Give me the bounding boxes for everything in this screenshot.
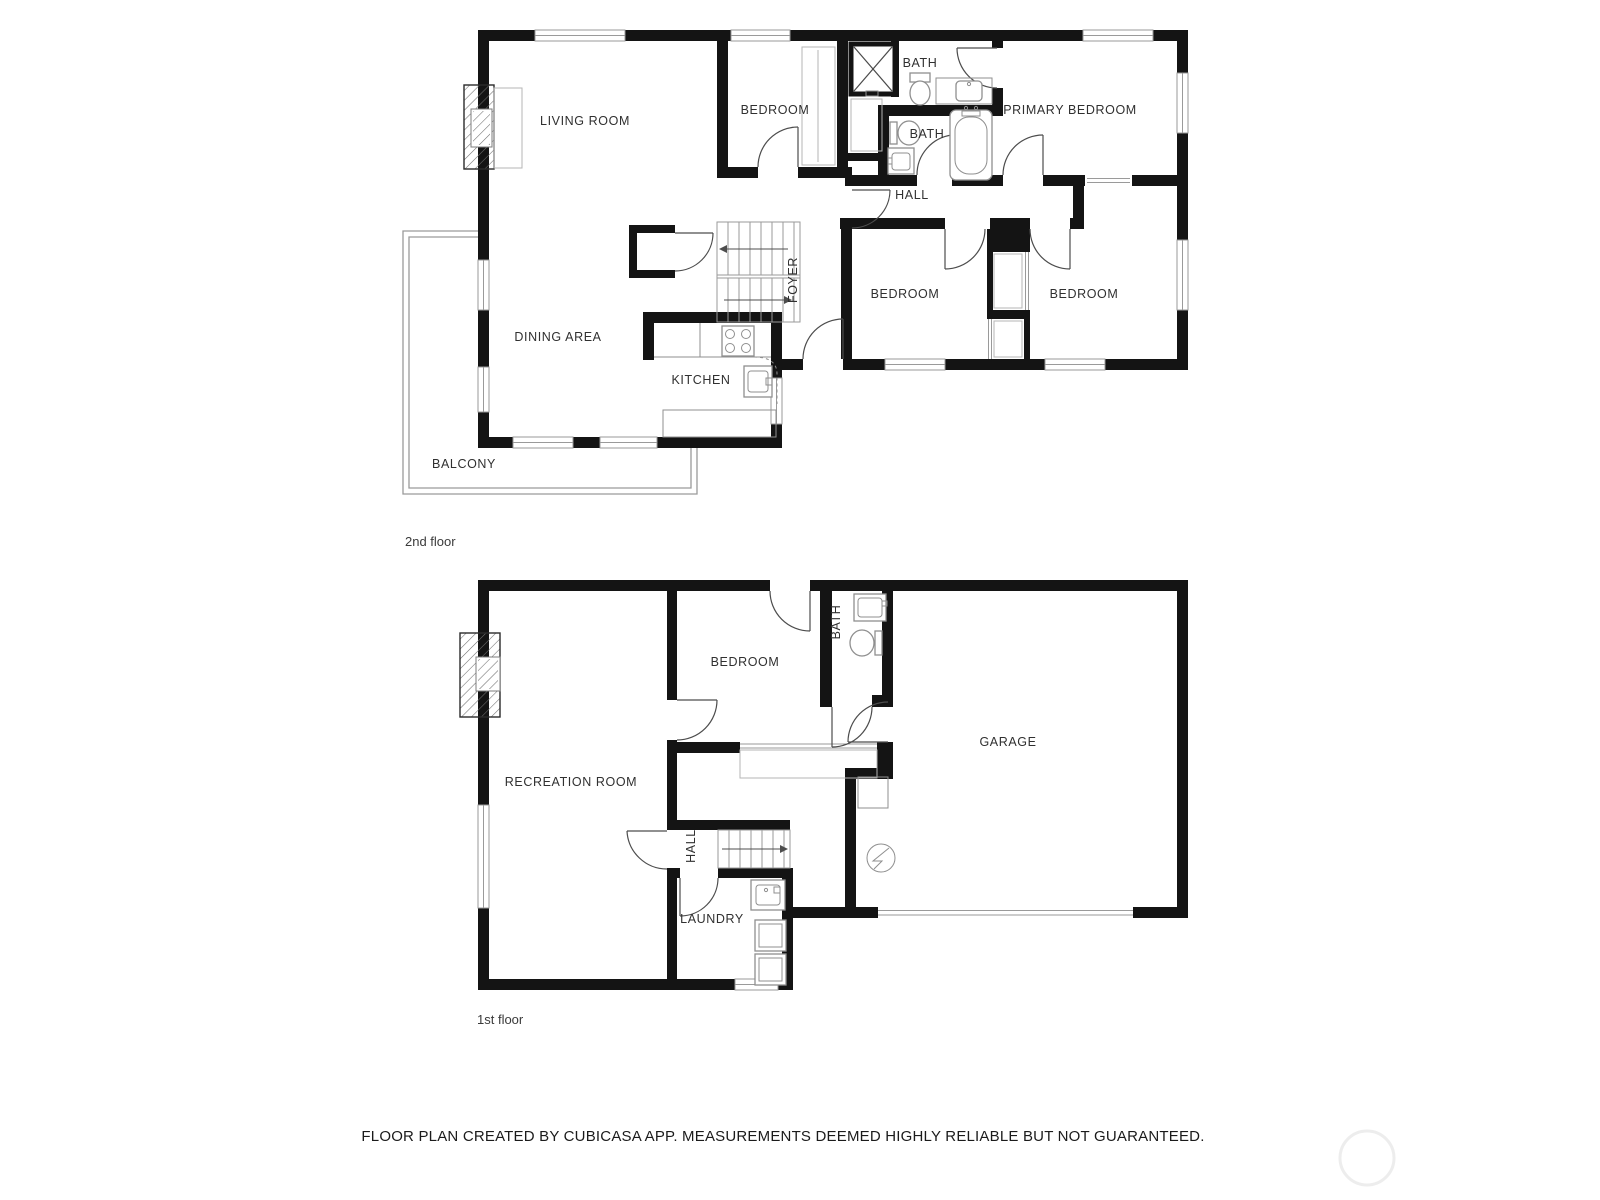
walls-second-floor xyxy=(478,30,1188,448)
disclaimer-footer: FLOOR PLAN CREATED BY CUBICASA APP. MEAS… xyxy=(361,1128,1204,1145)
closet-linen xyxy=(851,99,882,151)
room-label-balcony: BALCONY xyxy=(432,457,496,471)
room-label-bedroom-right: BEDROOM xyxy=(1050,287,1119,301)
room-label-bedroom-1f: BEDROOM xyxy=(711,655,780,669)
cubicasa-watermark-circle xyxy=(1340,1131,1394,1185)
room-label-garage: GARAGE xyxy=(979,735,1036,749)
fireplace-first-floor xyxy=(460,633,500,717)
room-label-dining-area: DINING AREA xyxy=(514,330,601,344)
bathtub-icon xyxy=(950,106,992,180)
floor-plan-page: LIVING ROOM BEDROOM BATH PRIMARY BEDROOM… xyxy=(0,0,1600,1200)
stairs-first-floor xyxy=(718,830,790,868)
washer-icon xyxy=(755,920,786,951)
sink-icon-bath-upper xyxy=(936,78,992,104)
sliding-door-bedroom-closets xyxy=(987,252,1030,359)
laundry-sink-icon xyxy=(751,880,785,910)
sink-icon-bath-lower xyxy=(888,148,914,174)
windows-second-floor xyxy=(478,30,1188,448)
caption-second-floor: 2nd floor xyxy=(405,534,456,549)
shower-icon xyxy=(851,44,895,96)
fireplace-second-floor xyxy=(464,85,522,169)
room-label-bath-1f: BATH xyxy=(829,605,843,640)
room-label-bedroom-top: BEDROOM xyxy=(741,103,810,117)
room-label-bath-lower: BATH xyxy=(910,127,945,141)
room-label-bath-upper: BATH xyxy=(903,56,938,70)
sink-icon-bath-first xyxy=(854,594,887,621)
room-labels: LIVING ROOM BEDROOM BATH PRIMARY BEDROOM… xyxy=(432,56,1137,926)
electrical-panel-icon xyxy=(867,844,895,872)
room-label-foyer: FOYER xyxy=(786,257,800,303)
windows-first-floor xyxy=(478,805,778,990)
toilet-icon-bath-upper xyxy=(910,73,930,105)
room-label-hall-2f: HALL xyxy=(895,188,929,202)
room-label-hall-1f: HALL xyxy=(684,829,698,863)
garage-door xyxy=(878,907,1133,918)
room-label-living-room: LIVING ROOM xyxy=(540,114,630,128)
room-label-bedroom-mid: BEDROOM xyxy=(871,287,940,301)
toilet-icon-bath-first xyxy=(850,630,882,656)
dryer-icon xyxy=(755,954,786,985)
room-label-recreation-room: RECREATION ROOM xyxy=(505,775,637,789)
room-label-primary-bedroom: PRIMARY BEDROOM xyxy=(1003,103,1137,117)
room-label-laundry: LAUNDRY xyxy=(680,912,744,926)
room-label-kitchen: KITCHEN xyxy=(671,373,730,387)
water-heater-icon xyxy=(858,777,888,808)
caption-first-floor: 1st floor xyxy=(477,1012,524,1027)
floor-plan-drawing: LIVING ROOM BEDROOM BATH PRIMARY BEDROOM… xyxy=(0,0,1600,1200)
